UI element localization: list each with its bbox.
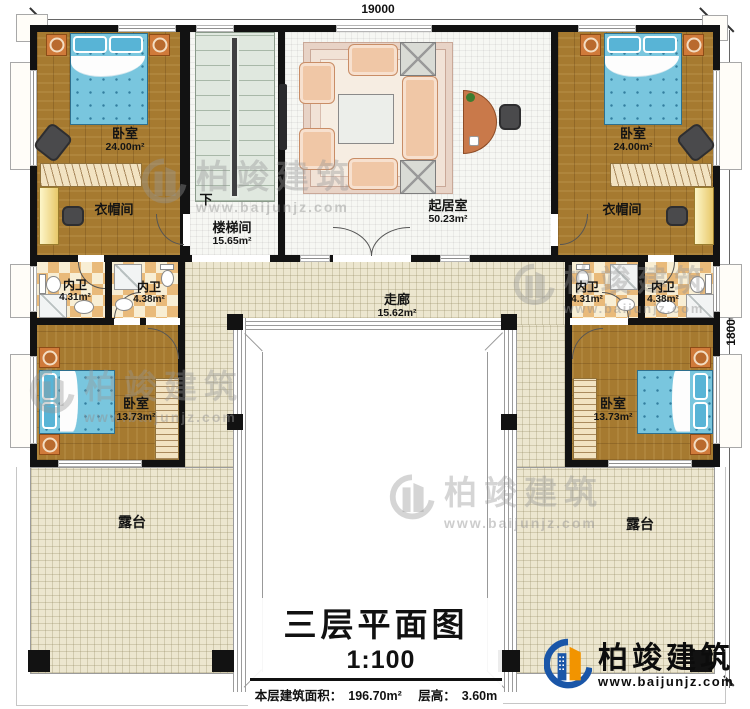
bed-sheet (60, 371, 78, 432)
pillow (643, 36, 677, 53)
room-label-bath-left-inner: 内卫 4.38m² (133, 280, 165, 306)
stair-center-rail (232, 38, 237, 196)
nightstand-lamp (683, 34, 704, 56)
sink (617, 298, 635, 311)
room-label-bedroom-tr: 卧室 24.00m² (613, 126, 652, 154)
brand-logo: 柏竣建筑 www.baijunjz.com (544, 634, 734, 698)
top-dimension-label: 19000 (350, 2, 406, 16)
window (713, 70, 720, 166)
sofa (402, 76, 438, 160)
door-opening (570, 318, 604, 325)
floor-terrace-left (30, 467, 237, 674)
column (212, 650, 234, 672)
void-railing-left (233, 318, 246, 692)
floor-height-value: 3.60m (462, 689, 497, 703)
room-label-corridor: 走廊 15.62m² (377, 292, 416, 320)
clothes-rack (610, 163, 712, 187)
nightstand-lamp (39, 347, 60, 368)
column (501, 414, 517, 430)
pillow (693, 373, 708, 400)
pillow (607, 36, 641, 53)
floor-area-label: 本层建筑面积： (255, 689, 343, 703)
column (227, 414, 243, 430)
room-label-bath-right-outer: 内卫 4.38m² (647, 280, 679, 306)
floor-height-label: 层高： (418, 689, 456, 703)
room-label-living: 起居室 50.23m² (428, 198, 467, 226)
floor-plan-page: 19000 18000 (0, 0, 750, 709)
room-label-bedroom-tl: 卧室 24.00m² (105, 126, 144, 154)
walkway-right (515, 325, 565, 467)
sofa-seat (348, 158, 398, 190)
door-opening (183, 214, 190, 246)
brand-logo-icon (544, 634, 592, 698)
plan-scale: 1:100 (347, 646, 416, 674)
window (58, 460, 142, 467)
pillow (109, 36, 143, 53)
window (713, 356, 720, 444)
void-railing-right (504, 318, 517, 692)
window (440, 255, 470, 262)
shower-tray (686, 294, 714, 318)
title-underline (250, 678, 502, 681)
pillow (42, 402, 57, 429)
void-bevel (244, 333, 262, 351)
watermark-logo-icon (388, 470, 436, 528)
nightstand-lamp (39, 434, 60, 455)
armchair (299, 128, 335, 170)
window-sill (718, 354, 742, 448)
room-label-cloakroom-left: 衣帽间 (94, 202, 133, 217)
corner-table (400, 42, 436, 76)
nightstand-lamp (690, 434, 711, 455)
stair-direction-label: 下 (199, 192, 212, 207)
void-bevel (485, 332, 503, 350)
room-label-cloakroom-right: 衣帽间 (602, 202, 641, 217)
stool (666, 206, 688, 226)
door-opening (114, 318, 140, 325)
top-dimension-line (35, 19, 712, 20)
armchair (299, 62, 335, 104)
pillow (42, 373, 57, 400)
room-label-bath-right-inner: 内卫 4.31m² (571, 280, 603, 306)
desk-item (469, 136, 479, 146)
toilet (690, 276, 705, 293)
nightstand-lamp (690, 347, 711, 368)
clothes-rack (40, 163, 142, 187)
window (30, 266, 37, 312)
pillow (73, 36, 107, 53)
window (578, 25, 636, 32)
stair-passage-opening (192, 255, 270, 262)
window (608, 460, 692, 467)
nightstand-lamp (580, 34, 601, 56)
french-door-opening (333, 255, 411, 262)
door-opening (551, 214, 558, 246)
desk-chair (499, 104, 521, 130)
bed-sheet (672, 371, 690, 432)
sink (115, 298, 133, 311)
room-label-bedroom-bl: 卧室 13.73m² (116, 396, 155, 424)
title-block: 三层平面图1:100 本层建筑面积：196.70m² 层高：3.60m (250, 598, 502, 704)
stool (62, 206, 84, 226)
void-railing-top (246, 318, 504, 330)
window (196, 25, 234, 32)
wardrobe (155, 378, 179, 460)
window-sill (718, 264, 742, 318)
tv-on-wall (279, 84, 287, 150)
room-label-bedroom-br: 卧室 13.73m² (593, 396, 632, 424)
door-opening (648, 255, 674, 262)
brand-website: www.baijunjz.com (598, 674, 734, 689)
floor-area-value: 196.70m² (348, 689, 402, 703)
column (227, 314, 243, 330)
window (713, 266, 720, 312)
door-opening (602, 318, 628, 325)
dressing-table (39, 187, 59, 245)
brand-name: 柏竣建筑 (598, 643, 734, 675)
room-label-stair: 楼梯间 15.65m² (212, 220, 251, 248)
door-opening (146, 318, 180, 325)
nightstand-lamp (149, 34, 170, 56)
window (30, 356, 37, 444)
nightstand-lamp (46, 34, 67, 56)
door-opening (78, 255, 104, 262)
room-label-terrace-left: 露台 (118, 514, 146, 531)
coffee-table (338, 94, 394, 144)
window (300, 255, 330, 262)
plan-title: 三层平面图 (284, 606, 469, 643)
plant (466, 93, 475, 102)
dressing-table (694, 187, 714, 245)
window (118, 25, 176, 32)
shower-tray (610, 264, 638, 290)
pillow (693, 402, 708, 429)
toilet-tank (39, 274, 46, 294)
room-label-bath-left-outer: 内卫 4.31m² (59, 278, 91, 304)
sofa-seat (348, 44, 398, 76)
column (28, 650, 50, 672)
window (30, 70, 37, 166)
room-label-terrace-right: 露台 (626, 516, 654, 533)
toilet-tank (705, 274, 712, 294)
window (336, 25, 432, 32)
walkway-left (185, 325, 235, 467)
window-sill (718, 62, 742, 170)
corner-table (400, 160, 436, 194)
column (501, 314, 517, 330)
